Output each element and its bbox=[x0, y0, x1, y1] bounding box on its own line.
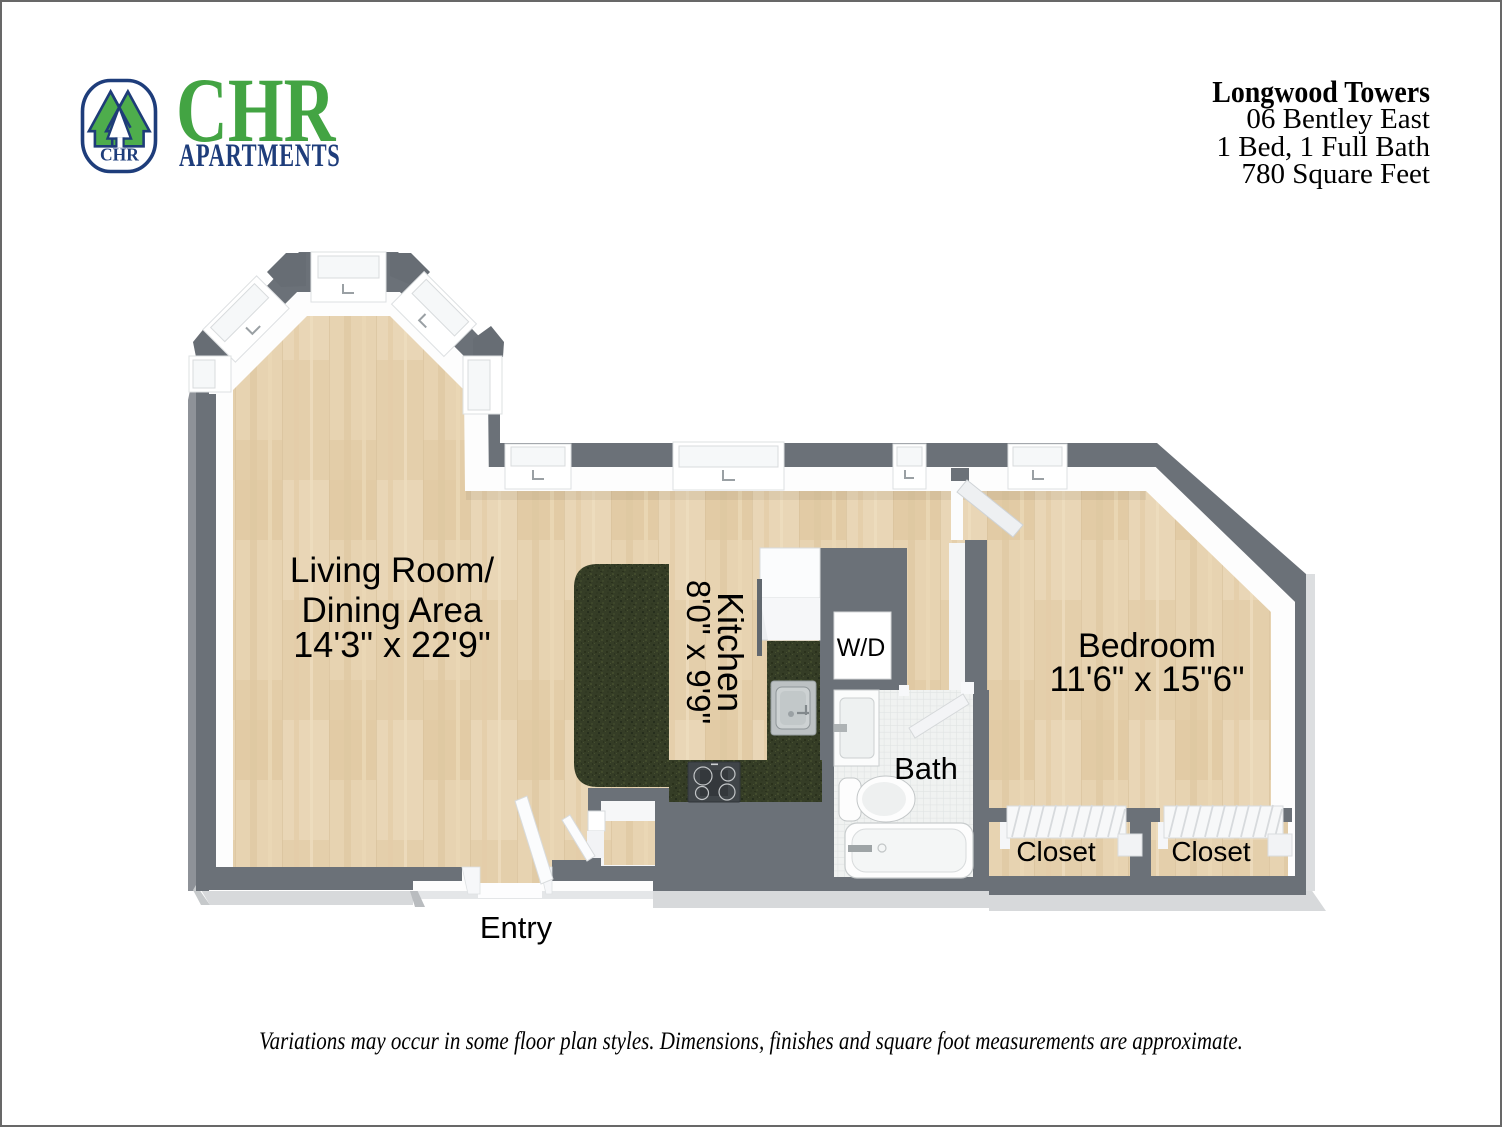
svg-text:Closet: Closet bbox=[1016, 836, 1096, 867]
svg-text:Closet: Closet bbox=[1171, 836, 1251, 867]
svg-text:W/D: W/D bbox=[837, 634, 886, 662]
svg-text:14'3" x 22'9": 14'3" x 22'9" bbox=[293, 624, 490, 665]
svg-text:8'0" x 9'9": 8'0" x 9'9" bbox=[680, 580, 717, 724]
svg-text:Living Room/: Living Room/ bbox=[290, 551, 495, 590]
svg-text:Entry: Entry bbox=[480, 910, 553, 945]
svg-text:Bath: Bath bbox=[894, 751, 958, 786]
svg-text:11'6" x 15"6": 11'6" x 15"6" bbox=[1049, 660, 1244, 699]
